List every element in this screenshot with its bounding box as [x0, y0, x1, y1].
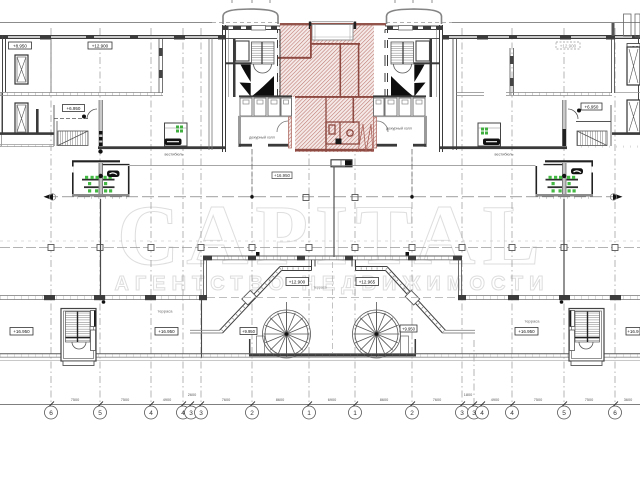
svg-text:8600: 8600 [380, 398, 388, 402]
svg-text:4900: 4900 [491, 398, 499, 402]
svg-text:3: 3 [189, 410, 193, 417]
svg-text:7500: 7500 [71, 398, 79, 402]
svg-text:5: 5 [98, 410, 102, 417]
svg-text:4: 4 [510, 410, 514, 417]
svg-text:4900: 4900 [163, 398, 171, 402]
svg-text:2: 2 [410, 410, 414, 417]
svg-text:вестибюль: вестибюль [165, 153, 184, 157]
svg-text:+9.950: +9.950 [402, 327, 416, 332]
svg-text:АГЕНТСТВО НЕДВИЖИМОСТИ: АГЕНТСТВО НЕДВИЖИМОСТИ [114, 273, 549, 295]
svg-text:4: 4 [181, 410, 185, 417]
svg-text:CAPITAL: CAPITAL [117, 187, 547, 283]
svg-text:+16.9: +16.9 [627, 329, 639, 334]
svg-text:вестибюль: вестибюль [495, 153, 514, 157]
svg-text:дежурный холл: дежурный холл [249, 136, 275, 140]
svg-text:3: 3 [460, 410, 464, 417]
svg-text:6: 6 [49, 410, 53, 417]
svg-text:+6.950: +6.950 [67, 106, 81, 111]
svg-text:6900: 6900 [328, 398, 336, 402]
svg-text:1: 1 [307, 410, 311, 417]
svg-text:7500: 7500 [121, 398, 129, 402]
svg-text:терраса: терраса [158, 309, 174, 314]
svg-text:1800: 1800 [464, 393, 472, 397]
svg-text:2600: 2600 [188, 393, 196, 397]
svg-text:+16.950: +16.950 [158, 329, 175, 334]
svg-text:+12.965: +12.965 [359, 280, 376, 285]
svg-text:2: 2 [250, 410, 254, 417]
svg-text:+12.900: +12.900 [560, 44, 577, 49]
svg-text:4: 4 [480, 410, 484, 417]
svg-text:8600: 8600 [276, 398, 284, 402]
svg-text:+6.950: +6.950 [585, 105, 599, 110]
svg-text:+9.950: +9.950 [242, 329, 256, 334]
svg-text:+16.950: +16.950 [518, 329, 535, 334]
svg-text:дежурный холл: дежурный холл [386, 127, 412, 131]
svg-text:3600: 3600 [624, 398, 632, 402]
svg-text:5: 5 [562, 410, 566, 417]
svg-text:6: 6 [613, 410, 617, 417]
svg-text:+16.950: +16.950 [274, 173, 291, 178]
svg-text:+16.950: +16.950 [13, 329, 30, 334]
svg-text:терраса: терраса [525, 319, 541, 324]
svg-text:3: 3 [472, 410, 476, 417]
svg-text:7500: 7500 [585, 398, 593, 402]
svg-text:7600: 7600 [433, 398, 441, 402]
svg-text:3: 3 [199, 410, 203, 417]
svg-text:4: 4 [149, 410, 153, 417]
svg-text:+12.900: +12.900 [289, 280, 306, 285]
svg-text:+8.950: +8.950 [13, 44, 27, 49]
svg-text:7500: 7500 [534, 398, 542, 402]
svg-text:+12.900: +12.900 [92, 44, 109, 49]
svg-text:7600: 7600 [222, 398, 230, 402]
svg-text:1: 1 [353, 410, 357, 417]
svg-text:терраса: терраса [313, 286, 326, 290]
